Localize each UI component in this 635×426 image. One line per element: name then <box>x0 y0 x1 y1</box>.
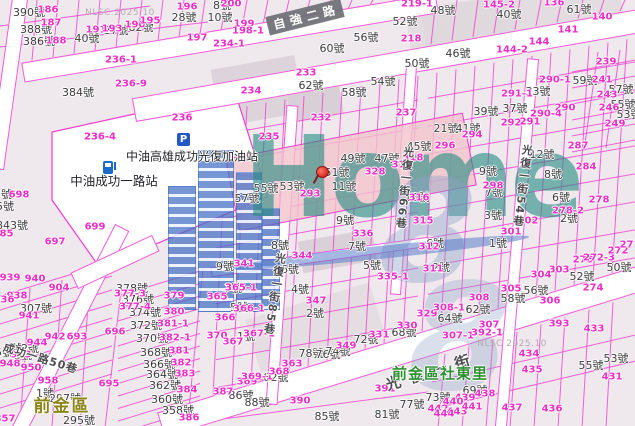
house-number-label: 6號 <box>552 189 570 205</box>
house-number-label: 57號 <box>235 190 260 206</box>
lot-number-label: 291-1 <box>501 89 533 100</box>
lot-number-label: 344 <box>292 251 313 262</box>
house-number-label: 48號 <box>431 2 456 18</box>
lot-number-label: 328 <box>365 167 386 178</box>
lot-number-label: 186 <box>38 5 59 16</box>
house-number-label: 37號 <box>503 100 528 116</box>
lot-number-label: 437 <box>502 403 523 414</box>
house-number-label: 46號 <box>446 45 471 61</box>
house-number-label: 9號 <box>479 163 497 179</box>
house-number-label: 58號 <box>342 84 367 100</box>
lot-number-label: 308-1 <box>433 303 465 314</box>
lot-number-label: 433 <box>584 324 605 335</box>
lot-number-label: 904 <box>49 283 70 294</box>
lot-number-label: 392-1 <box>471 328 503 339</box>
lot-number-label: 303 <box>549 265 570 276</box>
lot-number-label: 939 <box>0 273 20 284</box>
lot-number-label: 382 <box>171 358 192 369</box>
house-number-label: 11號 <box>332 178 357 194</box>
lot-number-label: 380 <box>164 307 185 318</box>
lot-number-label: 697 <box>45 237 66 248</box>
lot-number-label: 698 <box>9 190 30 201</box>
lot-number-label: 311 <box>423 264 444 275</box>
lot-number-label: 239 <box>596 57 617 68</box>
house-number-label: 56號 <box>354 29 379 45</box>
lot-number-label: 200 <box>221 0 242 10</box>
house-number-label: 2號 <box>306 305 324 321</box>
lot-number-label: 331 <box>369 330 390 341</box>
lot-number-label: 188 <box>46 36 67 47</box>
house-number-label: 62號 <box>299 77 324 93</box>
lot-number-label: 237 <box>396 108 417 119</box>
house-number-label: 3號 <box>484 207 502 223</box>
lot-number-label: 366-1 <box>233 304 265 315</box>
lot-number-label: 699 <box>85 222 106 233</box>
lot-number-label: 193 <box>102 24 123 35</box>
lot-number-label: 940 <box>25 274 46 285</box>
lot-number-label: 381-1 <box>157 319 189 330</box>
lot-number-label: 287 <box>568 141 589 152</box>
lot-number-label: 294 <box>462 130 483 141</box>
lot-number-label: 304 <box>531 270 552 281</box>
lot-number-label: 136 <box>544 0 565 9</box>
map-pin-icon[interactable] <box>312 166 330 186</box>
village-label: 前金區社東里 <box>392 363 488 384</box>
lot-number-label: 885 <box>0 229 13 240</box>
lot-number-label: 341 <box>234 259 255 270</box>
lot-number-label: 431 <box>602 372 623 383</box>
house-number-label: 9號 <box>336 212 354 228</box>
lot-number-label: 382-1 <box>159 333 191 344</box>
lot-number-label: 381 <box>169 346 190 357</box>
lot-number-label: 249 <box>605 119 626 130</box>
house-number-label: 60號 <box>320 40 345 56</box>
house-number-label: 55號 <box>579 357 604 373</box>
lot-number-label: 235 <box>259 132 280 143</box>
lot-number-label: 441 <box>462 402 483 413</box>
lot-number-label: 243 <box>597 90 618 101</box>
lot-number-label: 236 <box>172 113 193 124</box>
house-number-label: 85號 <box>315 408 340 424</box>
lot-number-label: 383 <box>175 369 196 380</box>
lot-number-label: 386 <box>179 413 200 424</box>
lot-number-label: 306 <box>540 296 561 307</box>
house-number-label: 7號 <box>348 238 366 254</box>
lot-number-label: 196 <box>177 2 198 13</box>
lot-number-label: 444 <box>434 409 455 420</box>
lot-number-label: 197 <box>187 33 208 44</box>
lot-number-label: 379 <box>164 291 185 302</box>
lot-number-label: 387 <box>213 387 234 398</box>
map-canvas[interactable]: Home 8 8 390號388號386號40號27號82號28號384號8號1… <box>0 0 635 426</box>
lot-number-label: 284 <box>576 162 597 173</box>
poi-cpc-station-label: 中油成功一路站 <box>70 171 158 190</box>
lot-number-label: 942 <box>45 332 66 343</box>
lot-number-label: 367 <box>223 337 244 348</box>
house-number-label: 9號 <box>216 258 234 274</box>
lot-number-label: 316 <box>409 193 430 204</box>
lot-number-label: 365-1 <box>225 283 257 294</box>
lot-number-label: 393 <box>549 319 570 330</box>
house-number-label: 8號 <box>544 166 562 182</box>
lot-number-label: 377-4 <box>119 302 151 313</box>
lot-number-label: 390 <box>290 396 311 407</box>
house-number-label: 39號 <box>474 103 499 119</box>
house-number-label: 61號 <box>567 1 592 17</box>
house-number-label: 77號 <box>400 396 425 412</box>
attribution-text: NLSC 2025.10 <box>85 8 155 18</box>
lot-number-label: 335-1 <box>377 272 409 283</box>
lot-number-label: 234-1 <box>213 39 245 50</box>
lot-number-label: 347 <box>306 296 327 307</box>
lot-number-label: 436 <box>542 404 563 415</box>
attribution-text: NLSC 2025.10 <box>477 339 547 349</box>
lot-number-label: 696 <box>105 327 126 338</box>
lot-number-label: 438 <box>475 389 496 400</box>
lot-number-label: 278 <box>589 195 610 206</box>
lot-number-label: 145-2 <box>483 0 515 11</box>
lot-number-label: 336 <box>353 229 374 240</box>
lot-number-label: 298 <box>483 181 504 192</box>
lot-number-label: 233 <box>296 68 317 79</box>
lot-number-label: 693 <box>67 332 88 343</box>
lot-number-label: 357 <box>0 414 15 425</box>
lot-number-label: 292 <box>501 118 522 129</box>
house-number-label: 50號 <box>405 55 430 71</box>
lot-number-label: 349 <box>336 341 357 352</box>
house-number-label: 53號 <box>604 350 629 366</box>
house-number-label: 54號 <box>371 73 396 89</box>
pin-stem <box>313 174 319 184</box>
lot-number-label: 941 <box>19 311 40 322</box>
lot-number-label: 219-1 <box>401 0 433 10</box>
lot-number-label: 141 <box>558 25 579 36</box>
lot-number-label: 140 <box>592 12 613 23</box>
lot-number-label: 144 <box>529 37 550 48</box>
lot-number-label: 368 <box>269 367 290 378</box>
lot-number-label: 948 <box>0 359 20 370</box>
house-number-label: 384號 <box>62 84 94 100</box>
lot-number-label: 384 <box>177 385 198 396</box>
district-label: 前金區 <box>34 392 91 417</box>
lot-number-label: 232 <box>311 113 332 124</box>
lot-number-label: 330 <box>397 321 418 332</box>
house-number-label: 52號 <box>393 13 418 29</box>
lot-number-label: 958 <box>38 376 59 387</box>
lot-number-label: 296 <box>435 141 456 152</box>
lot-number-label: 234 <box>241 86 262 97</box>
lot-number-label: 274 <box>583 283 604 294</box>
lot-number-label: 307-1 <box>442 331 474 342</box>
house-number-label: 81號 <box>375 406 400 422</box>
lot-number-label: 187 <box>41 18 62 29</box>
lot-number-label: 293 <box>300 189 321 200</box>
lot-number-label: 271 <box>620 240 635 251</box>
lot-number-label: 246 <box>599 103 620 114</box>
parking-icon: P <box>177 133 190 146</box>
house-number-label: 88號 <box>245 394 270 410</box>
lot-number-label: 198-1 <box>232 26 264 37</box>
lot-number-label: 236-4 <box>84 132 116 143</box>
lot-number-label: 236-1 <box>105 55 137 66</box>
lot-number-label: 290-1 <box>539 75 571 86</box>
lot-number-label: 144-2 <box>496 45 528 56</box>
lot-number-label: 377-3 <box>114 289 146 300</box>
lot-number-label: 291 <box>520 117 541 128</box>
lot-number-label: 312 <box>419 242 440 253</box>
lot-number-label: 305 <box>501 284 522 295</box>
lot-number-label: 241 <box>592 75 613 86</box>
parcel-labels-layer: 390號388號386號40號27號82號28號384號8號10號62號60號5… <box>0 0 635 426</box>
lot-number-label: 434 <box>519 349 540 360</box>
lot-number-label: 308 <box>469 293 490 304</box>
lot-number-label: 218 <box>401 34 422 45</box>
lot-number-label: 278-2 <box>552 206 584 217</box>
lot-number-label: 695 <box>99 379 120 390</box>
lot-number-label: 315 <box>413 216 434 227</box>
lot-number-label: 435 <box>522 365 543 376</box>
lot-number-label: 936 <box>0 295 14 306</box>
house-number-label: 10號 <box>208 9 233 25</box>
poi-gas-station-label: 中油高雄成功光復加油站 <box>126 148 258 165</box>
lot-number-label: 236-9 <box>115 79 147 90</box>
